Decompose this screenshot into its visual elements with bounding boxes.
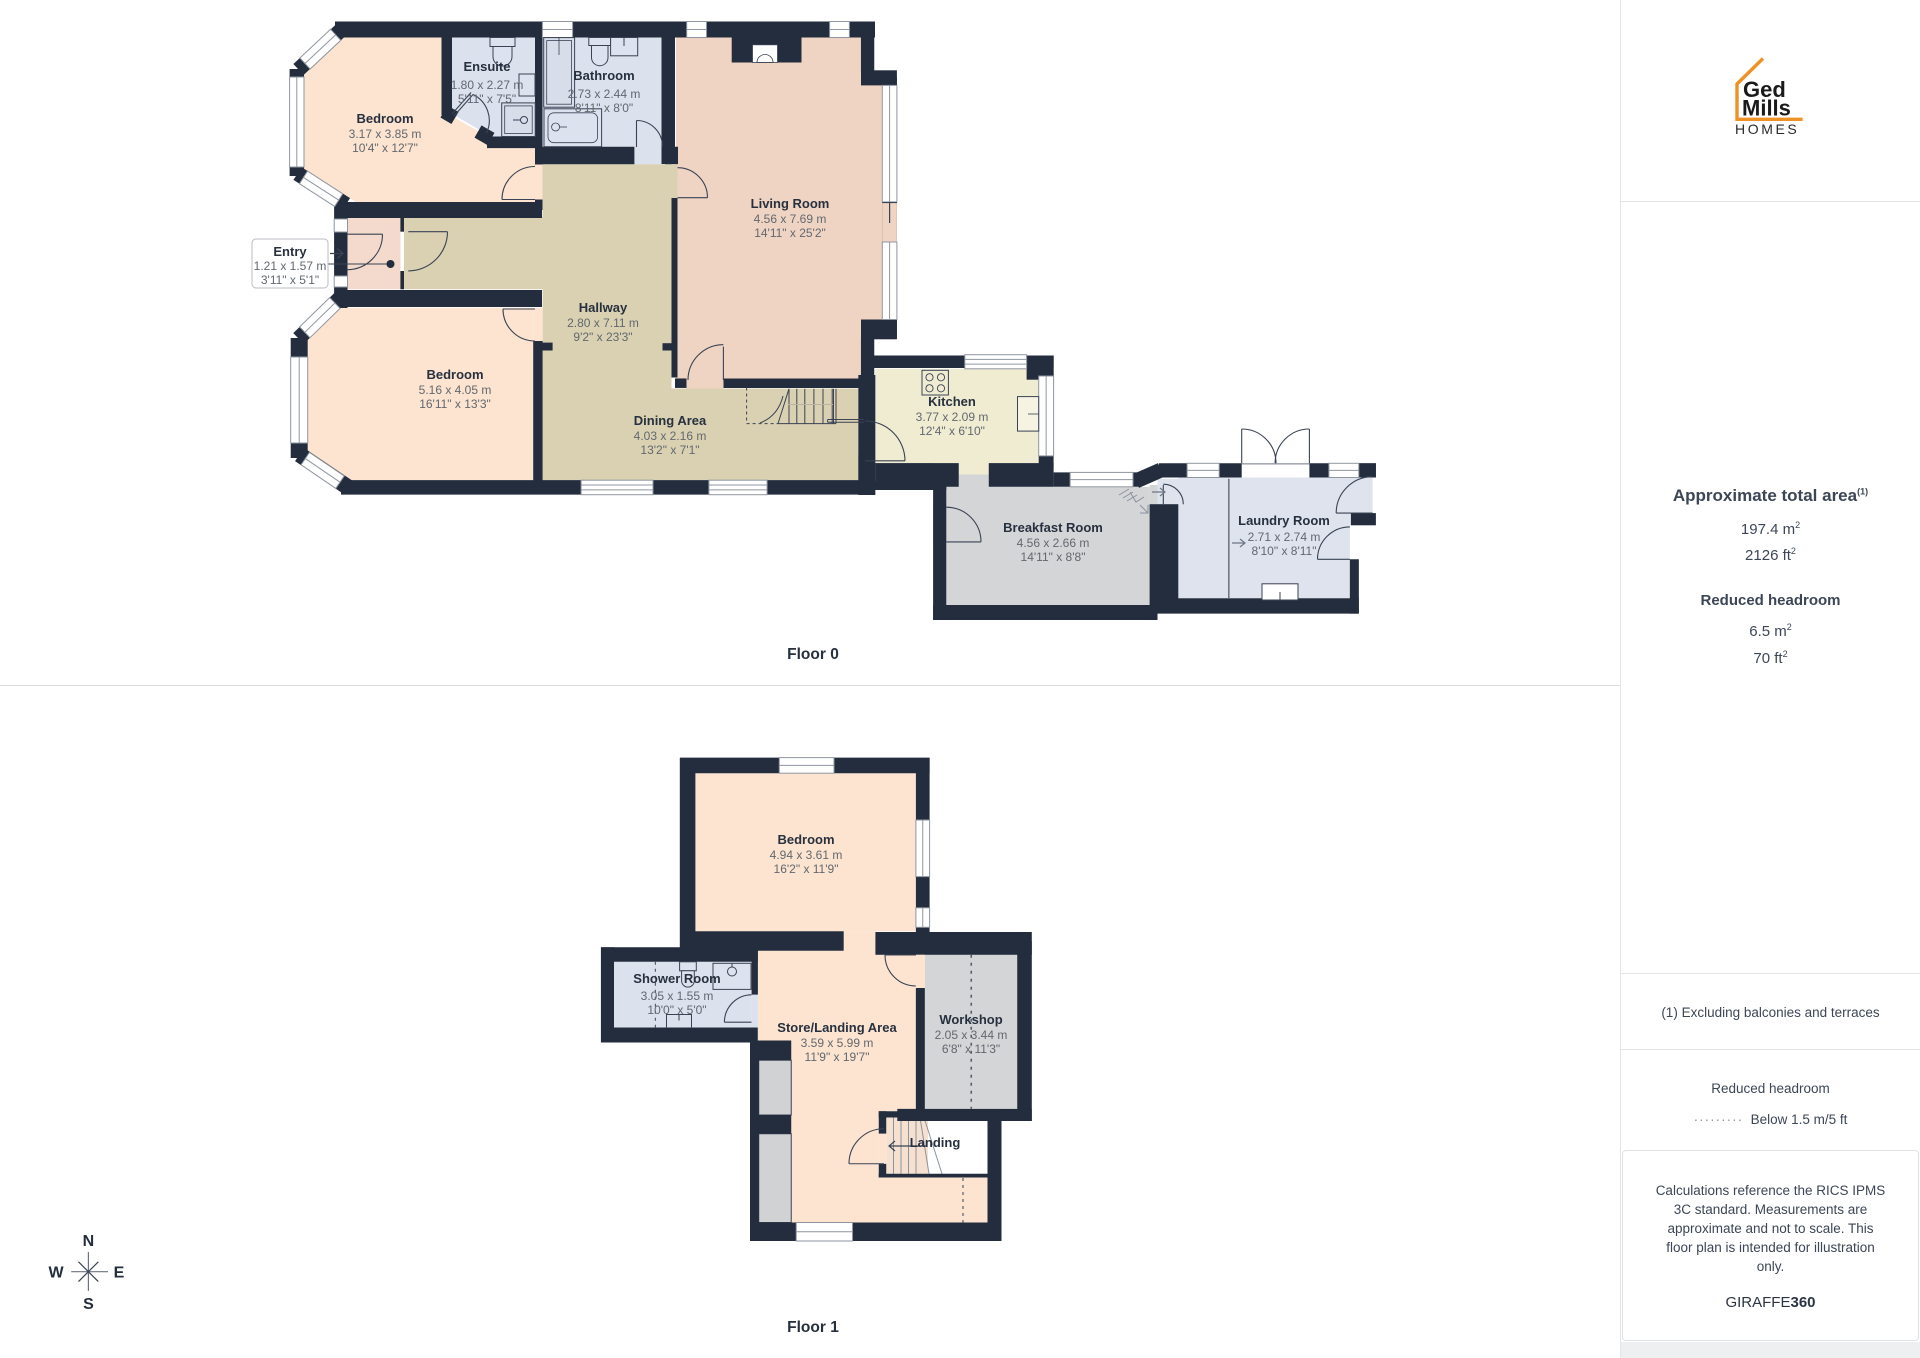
svg-text:1.21 x 1.57 m: 1.21 x 1.57 m — [254, 259, 327, 273]
svg-text:Kitchen: Kitchen — [928, 394, 976, 409]
svg-text:Entry: Entry — [273, 244, 307, 259]
svg-text:16'2" x 11'9": 16'2" x 11'9" — [774, 862, 839, 876]
svg-text:Ensuite: Ensuite — [464, 59, 511, 74]
svg-text:Living Room: Living Room — [751, 196, 830, 211]
svg-text:Bedroom: Bedroom — [777, 832, 834, 847]
svg-text:2.05 x 3.44 m: 2.05 x 3.44 m — [935, 1028, 1008, 1042]
svg-text:Landing: Landing — [910, 1135, 961, 1150]
svg-text:6'8" x 11'3": 6'8" x 11'3" — [942, 1042, 1000, 1056]
svg-text:3.77 x 2.09 m: 3.77 x 2.09 m — [916, 410, 989, 424]
svg-text:3.05 x 1.55 m: 3.05 x 1.55 m — [641, 989, 714, 1003]
svg-text:3'11" x 5'1": 3'11" x 5'1" — [261, 273, 319, 287]
svg-text:S: S — [83, 1296, 94, 1313]
svg-text:5'11" x 7'5": 5'11" x 7'5" — [458, 92, 516, 106]
svg-text:Breakfast Room: Breakfast Room — [1003, 520, 1103, 535]
svg-text:12'4" x 6'10": 12'4" x 6'10" — [919, 424, 985, 438]
svg-text:3.17 x 3.85 m: 3.17 x 3.85 m — [349, 127, 422, 141]
svg-text:4.03 x 2.16 m: 4.03 x 2.16 m — [634, 429, 707, 443]
svg-text:Laundry Room: Laundry Room — [1238, 513, 1330, 528]
svg-text:E: E — [114, 1265, 125, 1282]
svg-text:9'2" x 23'3": 9'2" x 23'3" — [573, 330, 632, 344]
svg-text:HOMES: HOMES — [1735, 121, 1799, 137]
svg-text:16'11" x 13'3": 16'11" x 13'3" — [419, 397, 491, 411]
svg-text:Shower Room: Shower Room — [633, 971, 720, 986]
svg-text:Bedroom: Bedroom — [356, 111, 413, 126]
svg-text:10'4" x 12'7": 10'4" x 12'7" — [352, 141, 418, 155]
svg-text:2.80 x 7.11 m: 2.80 x 7.11 m — [567, 316, 639, 330]
svg-text:Floor 0: Floor 0 — [787, 646, 839, 663]
svg-text:11'9" x 19'7": 11'9" x 19'7" — [805, 1050, 870, 1064]
svg-text:Dining Area: Dining Area — [634, 413, 707, 428]
svg-text:10'0" x 5'0": 10'0" x 5'0" — [647, 1003, 706, 1017]
svg-text:13'2" x 7'1": 13'2" x 7'1" — [640, 443, 699, 457]
svg-text:4.94 x 3.61 m: 4.94 x 3.61 m — [770, 848, 843, 862]
svg-text:4.56 x 2.66 m: 4.56 x 2.66 m — [1017, 536, 1090, 550]
svg-text:5.16 x 4.05 m: 5.16 x 4.05 m — [419, 383, 492, 397]
svg-text:8'10" x 8'11": 8'10" x 8'11" — [1252, 544, 1317, 558]
svg-text:2.71 x 2.74 m: 2.71 x 2.74 m — [1248, 530, 1321, 544]
svg-text:4.56 x 7.69 m: 4.56 x 7.69 m — [754, 212, 827, 226]
svg-text:Store/Landing Area: Store/Landing Area — [777, 1020, 897, 1035]
svg-text:8'11" x 8'0": 8'11" x 8'0" — [575, 101, 633, 115]
svg-text:14'11" x 25'2": 14'11" x 25'2" — [754, 226, 826, 240]
svg-text:2.73 x 2.44 m: 2.73 x 2.44 m — [568, 87, 641, 101]
svg-text:1.80 x 2.27 m: 1.80 x 2.27 m — [451, 78, 524, 92]
svg-text:Floor 1: Floor 1 — [787, 1319, 839, 1336]
svg-text:3.59 x 5.99 m: 3.59 x 5.99 m — [801, 1036, 874, 1050]
svg-text:Bedroom: Bedroom — [426, 367, 483, 382]
svg-text:Bathroom: Bathroom — [573, 68, 634, 83]
svg-text:Hallway: Hallway — [579, 300, 628, 315]
svg-text:Workshop: Workshop — [939, 1012, 1002, 1027]
svg-text:Mills: Mills — [1742, 96, 1791, 121]
svg-text:W: W — [48, 1265, 64, 1282]
svg-text:14'11" x 8'8": 14'11" x 8'8" — [1021, 550, 1086, 564]
svg-text:N: N — [83, 1233, 95, 1250]
